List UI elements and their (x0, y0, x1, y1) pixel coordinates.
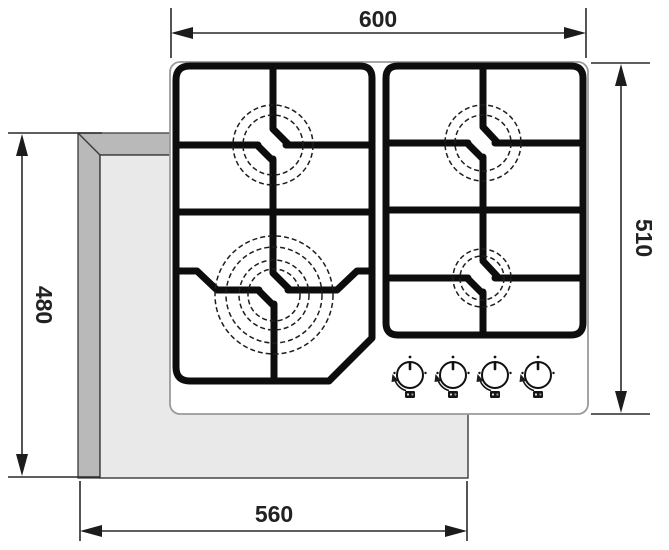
arrowhead-right (445, 525, 467, 537)
burner-position-icon (448, 391, 458, 398)
knob-dot-top (452, 356, 455, 359)
hob-body (170, 62, 588, 414)
arrowhead-right (564, 27, 586, 39)
knob-dot-top (494, 356, 497, 359)
installation-diagram: 600 510 480 560 (0, 0, 669, 550)
burner-position-icon (533, 391, 543, 398)
burner-position-icon (490, 391, 500, 398)
dim-label-bottom-width: 560 (255, 501, 293, 527)
knob-dot-left (478, 372, 480, 374)
arrowhead-left (171, 27, 193, 39)
knob-dot-right (424, 372, 426, 374)
dim-label-right-height: 510 (631, 219, 657, 257)
knob-dot-top (537, 356, 540, 359)
arrowhead-top (16, 134, 28, 156)
dim-label-top-width: 600 (359, 6, 397, 32)
knob-dot-left (393, 372, 395, 374)
arrowhead-bottom (615, 391, 627, 413)
knob-dot-right (552, 372, 554, 374)
knob-dot-top (409, 356, 412, 359)
knob-dot-right (467, 372, 469, 374)
diagram-canvas: 600 510 480 560 (0, 0, 669, 550)
knob-dot-right (509, 372, 511, 374)
dim-label-left-height: 480 (31, 286, 57, 324)
dimension-bottom-width: 560 (80, 481, 467, 541)
arrowhead-bottom (16, 454, 28, 476)
dimension-top-width: 600 (171, 6, 586, 58)
burner-position-icon (405, 391, 415, 398)
arrowhead-left (80, 525, 102, 537)
knob-dot-left (436, 372, 438, 374)
knob-dot-left (521, 372, 523, 374)
dimension-right-height: 510 (591, 63, 657, 414)
arrowhead-top (615, 64, 627, 86)
